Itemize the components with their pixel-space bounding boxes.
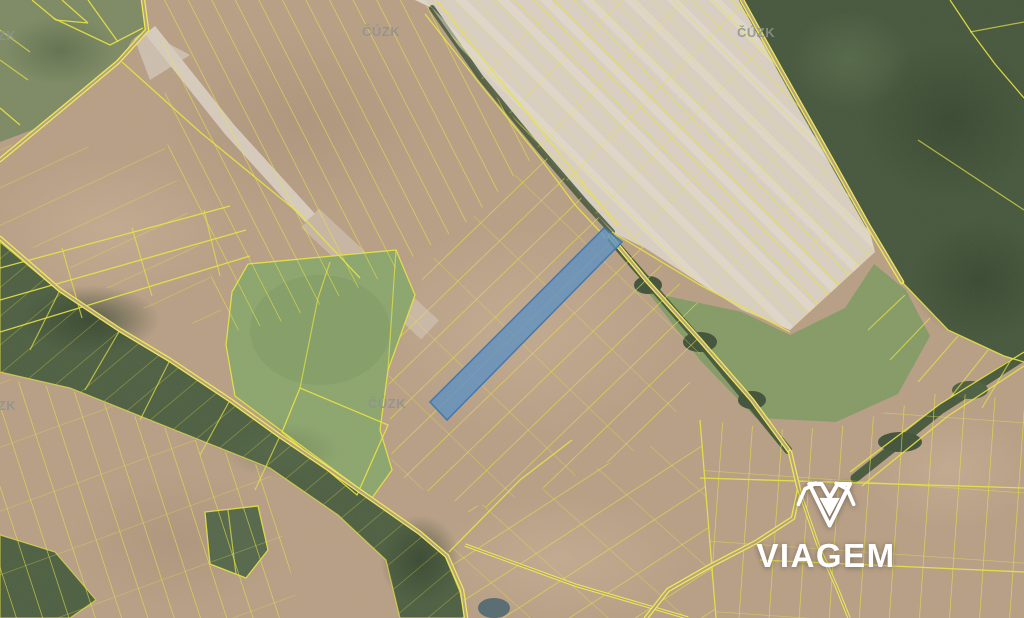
map-viewport[interactable]: ČÚZK ČÚZK ČÚZK ČÚZK ČÚZK VIAGEM (0, 0, 1024, 618)
viagem-gem-icon (788, 468, 864, 532)
cuzk-watermark: ČÚZK (0, 28, 16, 43)
cuzk-watermark: ČÚZK (362, 24, 400, 39)
cuzk-watermark: ČÚZK (737, 25, 775, 40)
cuzk-watermark: ČÚZK (0, 398, 16, 413)
cuzk-watermark: ČÚZK (368, 396, 406, 411)
viagem-logo: VIAGEM (746, 468, 906, 572)
viagem-logo-text: VIAGEM (746, 539, 906, 572)
